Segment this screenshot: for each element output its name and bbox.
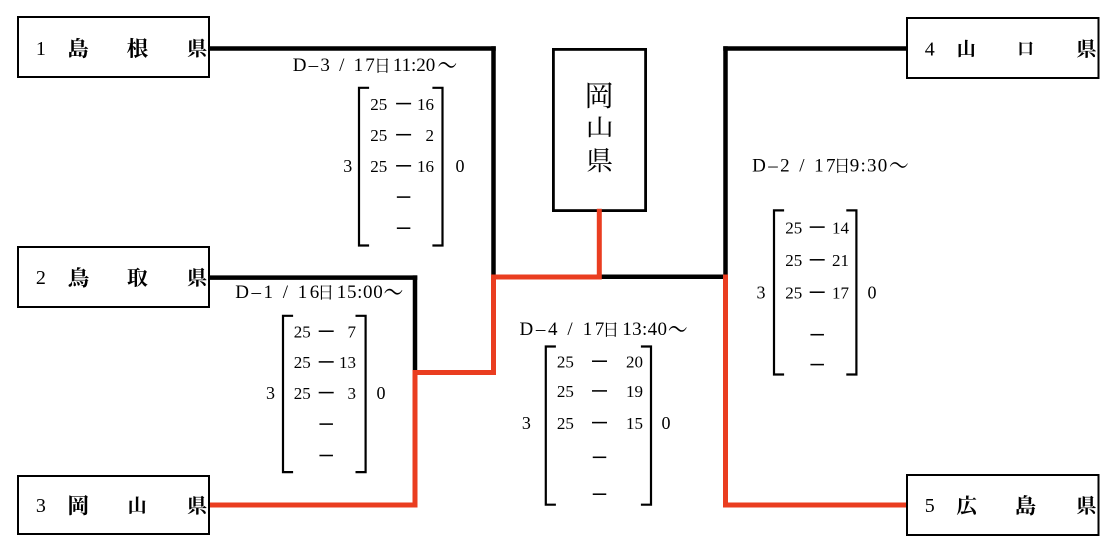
svg-text:11:20: 11:20 xyxy=(393,55,435,76)
svg-text:25: 25 xyxy=(785,218,802,237)
svg-text:3: 3 xyxy=(757,282,766,302)
svg-text:D–3 / 17: D–3 / 17 xyxy=(293,55,375,76)
svg-text:7: 7 xyxy=(348,322,357,341)
svg-text:16: 16 xyxy=(417,95,434,114)
svg-text:9:30: 9:30 xyxy=(850,155,888,176)
svg-text:D–2 / 17: D–2 / 17 xyxy=(752,155,835,176)
svg-text:3: 3 xyxy=(343,156,352,176)
svg-text:D–1 / 16: D–1 / 16 xyxy=(235,282,319,303)
svg-text:15: 15 xyxy=(626,414,643,433)
svg-text:25: 25 xyxy=(557,414,574,433)
svg-text:15:00: 15:00 xyxy=(337,282,383,303)
svg-text:25: 25 xyxy=(370,157,387,176)
svg-text:1: 1 xyxy=(36,38,46,60)
svg-text:D–4 / 17: D–4 / 17 xyxy=(520,319,605,340)
svg-text:25: 25 xyxy=(785,251,802,270)
svg-text:0: 0 xyxy=(377,383,386,403)
svg-text:3: 3 xyxy=(522,413,531,433)
svg-text:2: 2 xyxy=(426,126,435,145)
svg-text:25: 25 xyxy=(370,95,387,114)
svg-text:25: 25 xyxy=(294,353,311,372)
svg-text:16: 16 xyxy=(417,157,434,176)
svg-text:3: 3 xyxy=(348,384,357,403)
svg-text:5: 5 xyxy=(925,495,935,517)
svg-text:3: 3 xyxy=(36,495,46,517)
svg-text:4: 4 xyxy=(925,38,935,60)
svg-text:0: 0 xyxy=(868,282,877,302)
svg-text:25: 25 xyxy=(294,384,311,403)
svg-text:13:40: 13:40 xyxy=(622,319,667,340)
svg-text:0: 0 xyxy=(456,156,465,176)
svg-text:25: 25 xyxy=(557,352,574,371)
svg-text:0: 0 xyxy=(662,413,671,433)
svg-text:25: 25 xyxy=(785,283,802,302)
svg-text:25: 25 xyxy=(370,126,387,145)
svg-text:3: 3 xyxy=(266,383,275,403)
svg-text:20: 20 xyxy=(626,352,643,371)
svg-text:25: 25 xyxy=(294,322,311,341)
svg-text:13: 13 xyxy=(339,353,356,372)
svg-text:17: 17 xyxy=(832,283,850,302)
svg-text:21: 21 xyxy=(832,251,849,270)
svg-text:19: 19 xyxy=(626,382,643,401)
svg-text:14: 14 xyxy=(832,218,850,237)
svg-text:2: 2 xyxy=(36,267,46,289)
svg-text:25: 25 xyxy=(557,382,574,401)
